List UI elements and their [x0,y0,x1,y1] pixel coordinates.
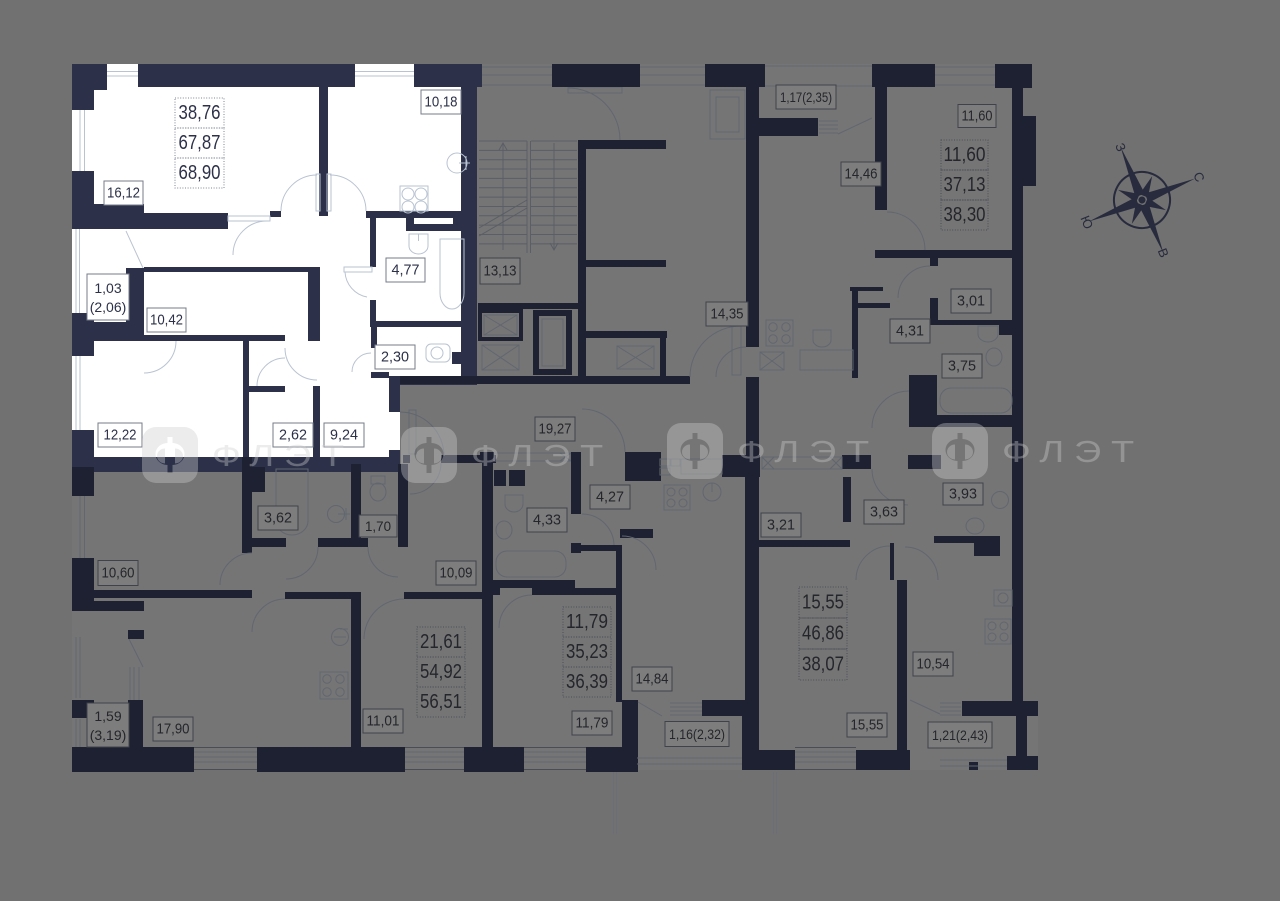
svg-text:56,51: 56,51 [420,691,462,713]
svg-text:14,84: 14,84 [636,671,669,688]
svg-text:4,27: 4,27 [596,489,624,506]
svg-text:10,09: 10,09 [440,565,473,582]
svg-text:10,18: 10,18 [425,94,458,111]
svg-text:35,23: 35,23 [566,641,608,663]
svg-text:37,13: 37,13 [944,174,986,196]
svg-text:14,35: 14,35 [711,306,744,323]
svg-text:ФЛЭТ: ФЛЭТ [1002,434,1144,469]
svg-text:4,33: 4,33 [533,512,561,529]
svg-text:68,90: 68,90 [179,162,221,184]
svg-text:10,42: 10,42 [150,312,183,329]
svg-text:ФЛЭТ: ФЛЭТ [471,438,613,473]
svg-text:54,92: 54,92 [420,661,462,683]
svg-text:ФЛЭТ: ФЛЭТ [737,434,879,469]
svg-text:2,30: 2,30 [381,349,409,366]
svg-text:38,30: 38,30 [944,204,986,226]
svg-text:1,21(2,43): 1,21(2,43) [932,727,988,743]
svg-text:1,70: 1,70 [365,518,391,534]
svg-text:(2,06): (2,06) [90,299,127,315]
svg-text:10,60: 10,60 [102,565,135,582]
svg-text:1,17(2,35): 1,17(2,35) [780,89,832,105]
svg-text:1,59: 1,59 [94,708,121,724]
svg-text:15,55: 15,55 [802,592,844,614]
svg-text:36,39: 36,39 [566,671,608,693]
svg-text:3,63: 3,63 [870,504,898,521]
svg-text:46,86: 46,86 [802,623,844,645]
svg-text:3,93: 3,93 [949,486,977,503]
svg-text:4,31: 4,31 [896,323,924,340]
svg-text:ФЛЭТ: ФЛЭТ [212,438,354,473]
svg-text:11,01: 11,01 [367,713,400,730]
svg-text:38,07: 38,07 [802,654,844,676]
svg-text:11,60: 11,60 [962,108,993,125]
svg-text:3,01: 3,01 [957,293,985,310]
svg-text:3,62: 3,62 [264,510,292,527]
svg-text:15,55: 15,55 [851,717,884,734]
svg-text:14,46: 14,46 [845,166,878,183]
svg-text:11,79: 11,79 [566,611,608,633]
svg-text:38,76: 38,76 [179,102,221,124]
svg-text:4,77: 4,77 [392,262,420,279]
svg-text:67,87: 67,87 [179,132,221,154]
svg-text:19,27: 19,27 [539,421,572,438]
svg-text:21,61: 21,61 [420,631,462,653]
svg-text:(3,19): (3,19) [90,727,127,743]
svg-text:10,54: 10,54 [917,656,950,673]
svg-text:17,90: 17,90 [157,721,190,738]
svg-text:11,79: 11,79 [576,715,609,732]
svg-text:11,60: 11,60 [944,144,986,166]
svg-text:3,75: 3,75 [948,358,976,375]
svg-text:16,12: 16,12 [107,185,140,202]
svg-text:3,21: 3,21 [767,517,795,534]
svg-text:12,22: 12,22 [104,427,137,444]
svg-text:1,03: 1,03 [94,280,121,296]
svg-text:1,16(2,32): 1,16(2,32) [669,726,725,742]
svg-text:13,13: 13,13 [484,263,517,280]
